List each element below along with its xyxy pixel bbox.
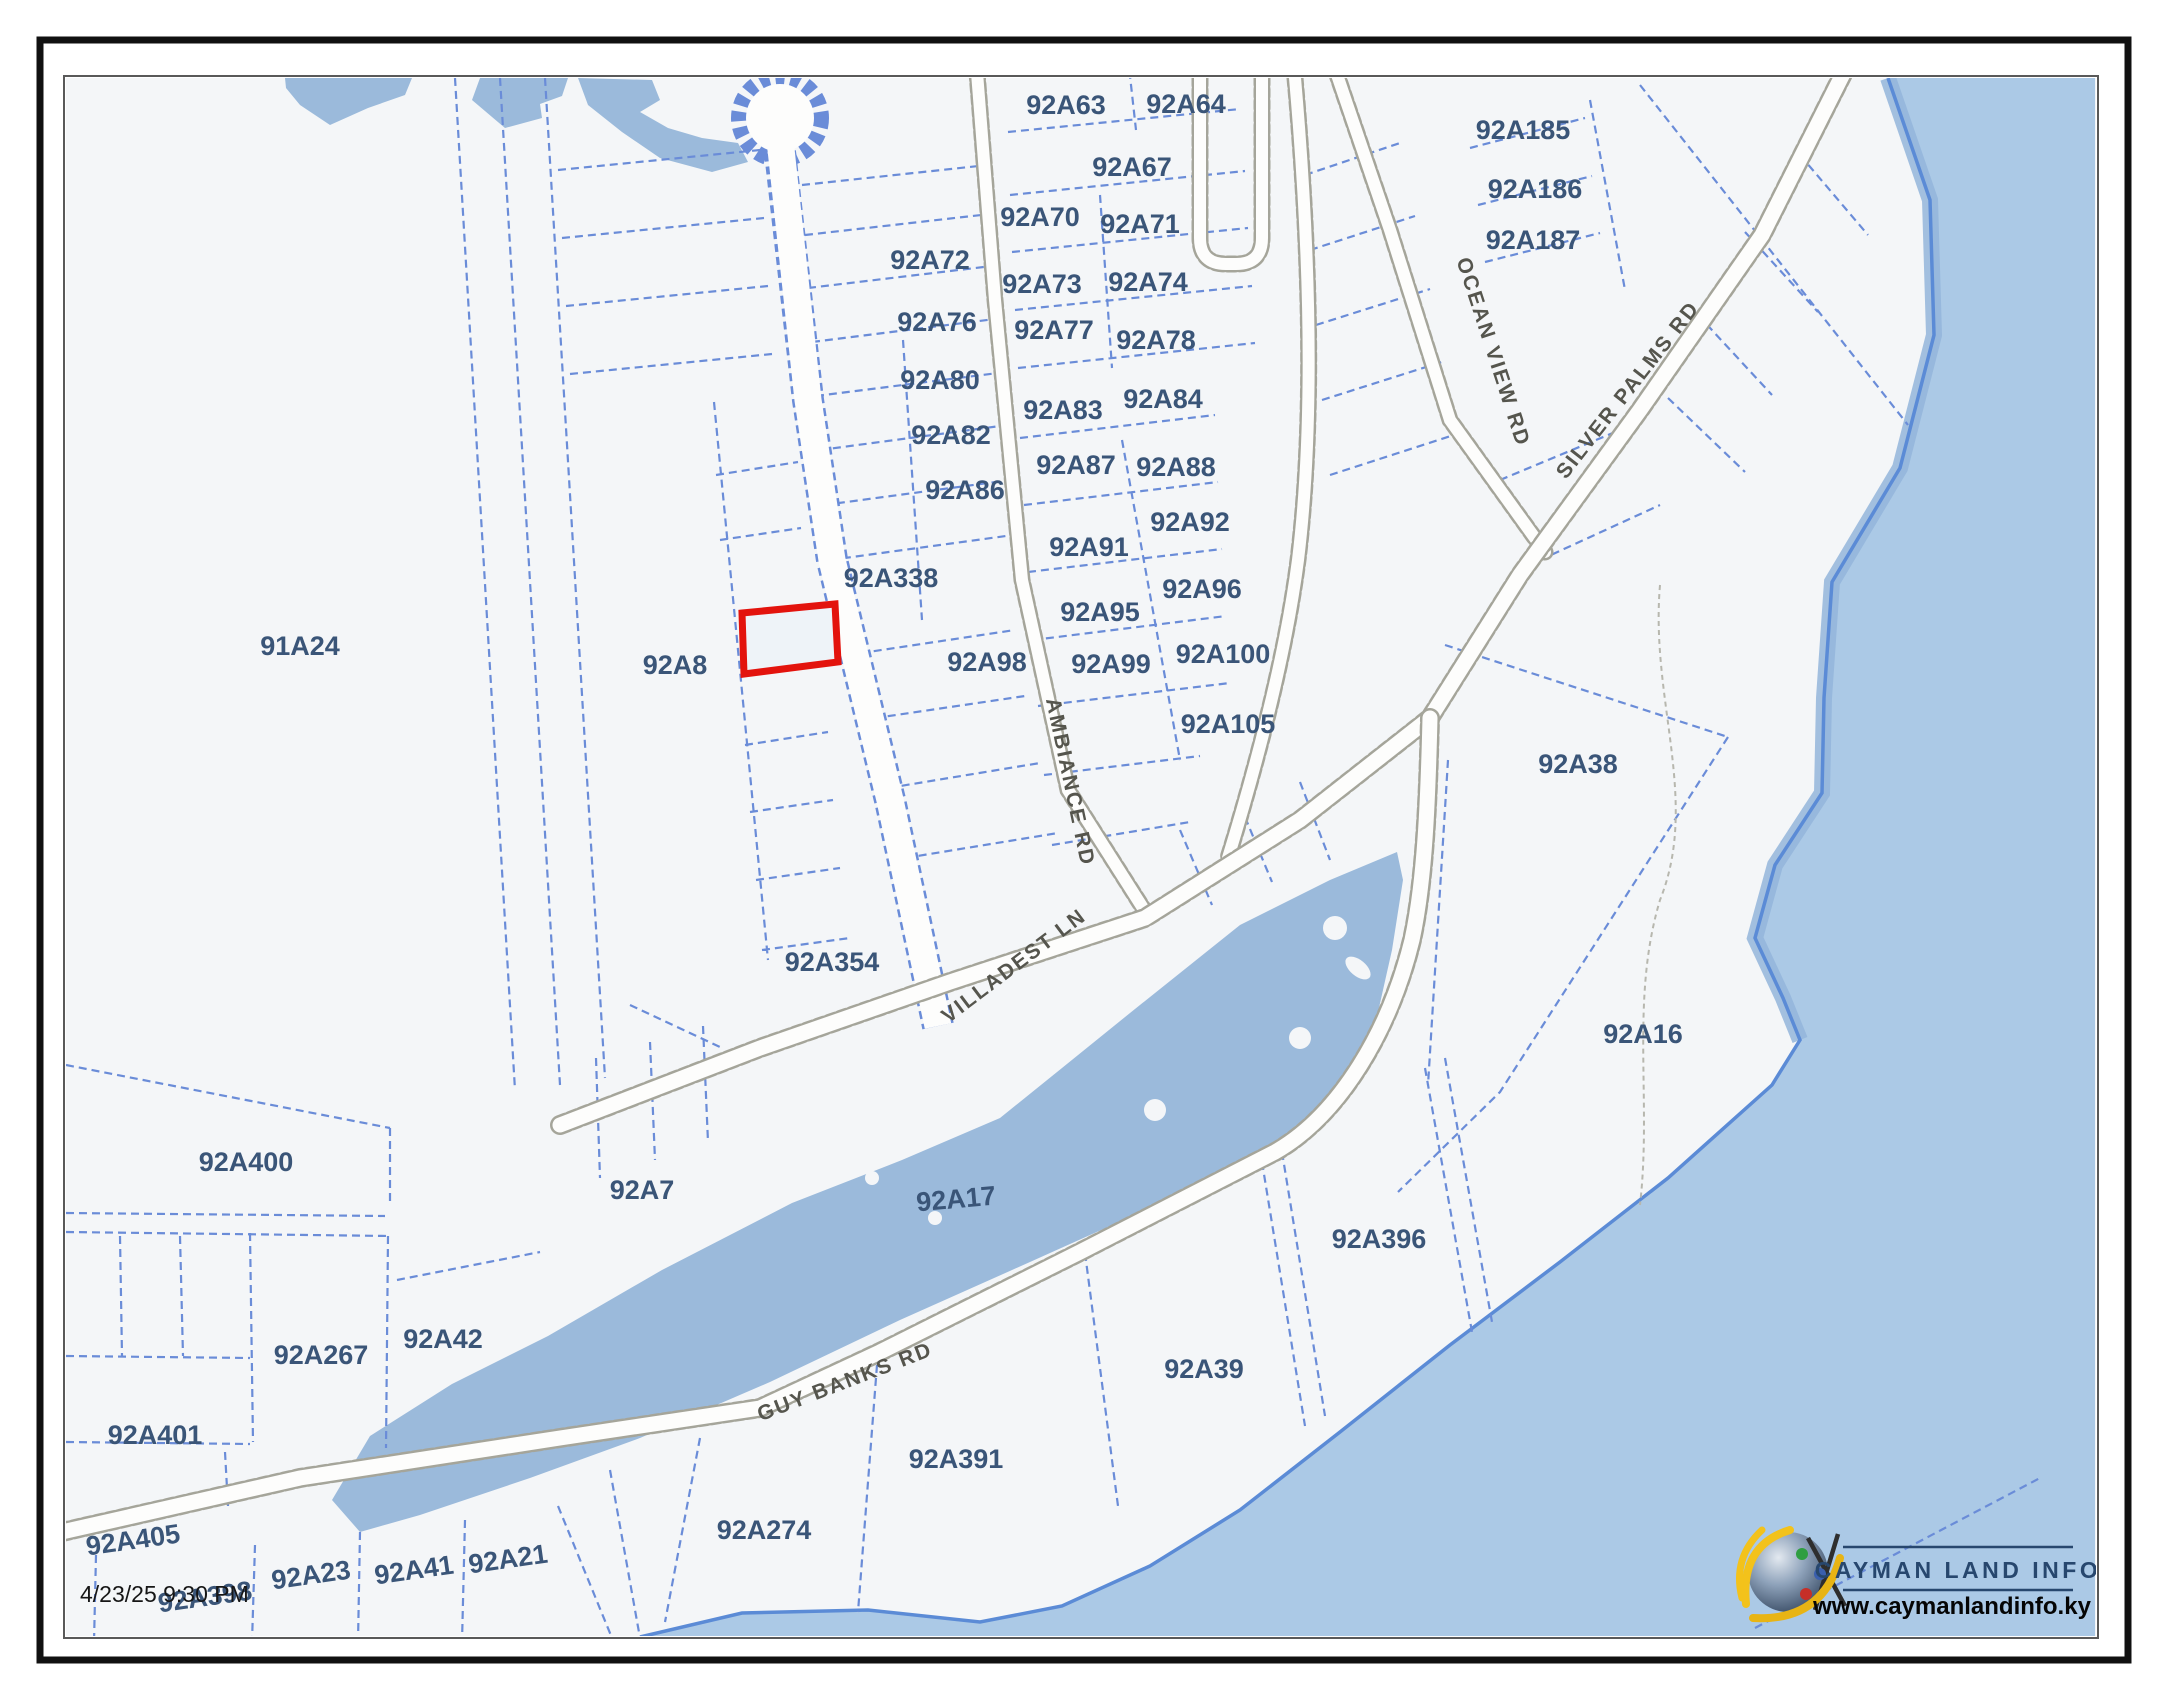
parcel-label-92a74: 92A74 <box>1108 267 1188 297</box>
parcel-label-92a73: 92A73 <box>1002 269 1082 299</box>
parcel-label-92a338: 92A338 <box>844 563 939 593</box>
parcel-label-92a39: 92A39 <box>1164 1354 1244 1384</box>
parcel-label-92a396: 92A396 <box>1332 1224 1427 1254</box>
logo-url: www.caymanlandinfo.ky <box>1812 1593 2092 1620</box>
parcel-label-92a77: 92A77 <box>1014 315 1094 345</box>
highlighted-parcel[interactable] <box>742 604 838 674</box>
parcel-label-92a185: 92A185 <box>1476 115 1571 145</box>
parcel-label-92a72: 92A72 <box>890 245 970 275</box>
parcel-label-92a100: 92A100 <box>1176 639 1271 669</box>
parcel-label-92a42: 92A42 <box>403 1324 483 1354</box>
parcel-label-92a187: 92A187 <box>1486 225 1581 255</box>
parcel-label-92a82: 92A82 <box>911 420 991 450</box>
parcel-label-92a354: 92A354 <box>785 947 880 977</box>
parcel-label-92a391: 92A391 <box>909 1444 1004 1474</box>
parcel-label-92a86: 92A86 <box>925 475 1005 505</box>
parcel-label-92a400: 92A400 <box>199 1147 294 1177</box>
parcel-label-92a80: 92A80 <box>900 365 980 395</box>
parcel-label-92a16: 92A16 <box>1603 1019 1683 1049</box>
parcel-label-92a63: 92A63 <box>1026 90 1106 120</box>
parcel-label-92a267: 92A267 <box>274 1340 369 1370</box>
parcel-label-92a84: 92A84 <box>1123 384 1203 414</box>
parcel-label-92a95: 92A95 <box>1060 597 1140 627</box>
logo-title: CAYMAN LAND INFO <box>1815 1557 2101 1583</box>
parcel-label-92a67: 92A67 <box>1092 152 1172 182</box>
parcel-label-92a99: 92A99 <box>1071 649 1151 679</box>
map-report-page: 91A2492A892A33892A35492A6392A6492A6792A7… <box>0 0 2168 1700</box>
parcel-label-92a83: 92A83 <box>1023 395 1103 425</box>
parcel-label-92a401: 92A401 <box>108 1420 203 1450</box>
parcel-label-92a38: 92A38 <box>1538 749 1618 779</box>
parcel-label-92a71: 92A71 <box>1100 209 1180 239</box>
logo-dot-green <box>1796 1548 1808 1560</box>
parcel-label-92a7: 92A7 <box>610 1175 675 1205</box>
parcel-label-92a186: 92A186 <box>1488 174 1583 204</box>
parcel-label-92a64: 92A64 <box>1146 89 1226 119</box>
parcel-label-92a88: 92A88 <box>1136 452 1216 482</box>
parcel-label-92a87: 92A87 <box>1036 450 1116 480</box>
parcel-label-92a76: 92A76 <box>897 307 977 337</box>
map-canvas[interactable]: 91A2492A892A33892A35492A6392A6492A6792A7… <box>0 0 2168 1700</box>
parcel-label-92a92: 92A92 <box>1150 507 1230 537</box>
timestamp: 4/23/25 9:30 PM <box>80 1581 249 1607</box>
parcel-label-92a8: 92A8 <box>643 650 708 680</box>
logo-dot-red <box>1800 1588 1812 1600</box>
parcel-label-92a105: 92A105 <box>1181 709 1276 739</box>
parcel-label-92a78: 92A78 <box>1116 325 1196 355</box>
parcel-label-92a98: 92A98 <box>947 647 1027 677</box>
parcel-label-92a96: 92A96 <box>1162 574 1242 604</box>
parcel-label-92a70: 92A70 <box>1000 202 1080 232</box>
parcel-label-92a91: 92A91 <box>1049 532 1129 562</box>
parcel-label-92a274: 92A274 <box>717 1515 812 1545</box>
parcel-label-91a24: 91A24 <box>260 631 340 661</box>
